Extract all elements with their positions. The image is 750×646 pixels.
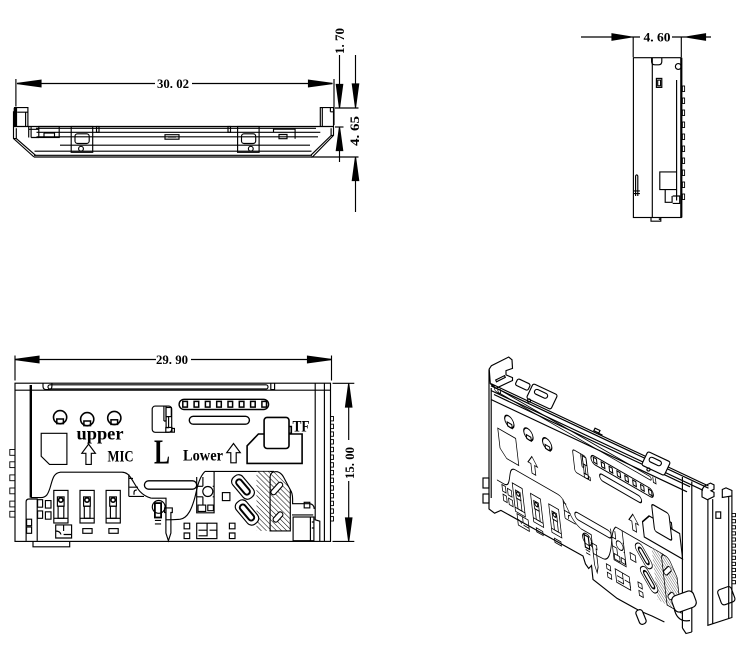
svg-text:upper: upper (77, 424, 124, 444)
svg-text:15. 00: 15. 00 (342, 447, 357, 479)
svg-text:MIC: MIC (108, 449, 134, 466)
svg-text:4. 65: 4. 65 (347, 115, 362, 146)
svg-text:30. 02: 30. 02 (157, 76, 189, 91)
svg-text:L: L (154, 433, 170, 472)
svg-text:1. 70: 1. 70 (332, 28, 347, 54)
svg-text:TF: TF (293, 419, 310, 436)
svg-text:4. 60: 4. 60 (644, 30, 671, 45)
svg-text:29. 90: 29. 90 (156, 352, 188, 367)
svg-text:Lower: Lower (183, 448, 223, 465)
